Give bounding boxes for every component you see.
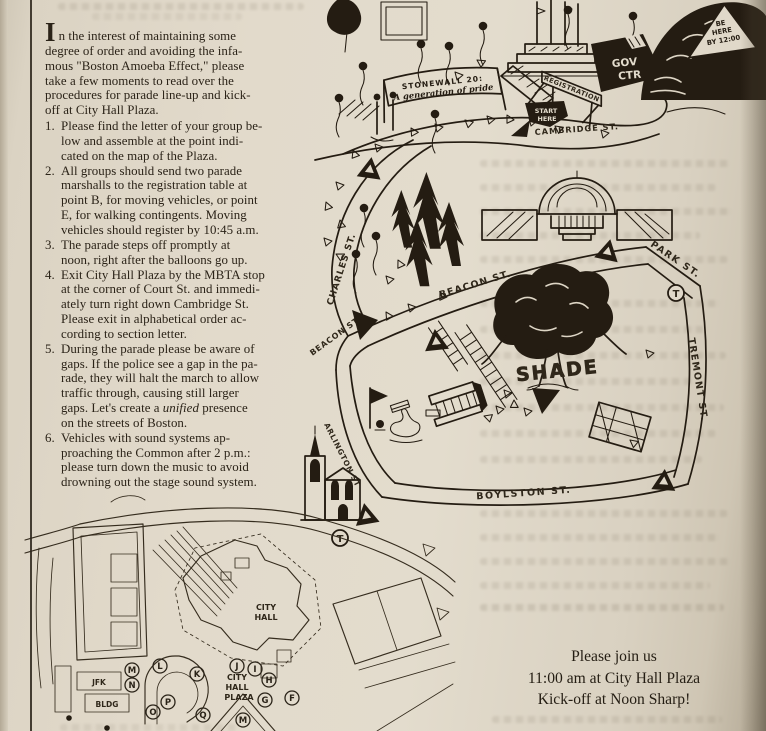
hatched-path (428, 321, 516, 407)
letter-marker: G (258, 693, 272, 707)
item-text: The parade steps off promptly at noon, r… (61, 238, 323, 268)
svg-text:P: P (165, 698, 171, 708)
intro-paragraph: In the interest of maintaining some degr… (45, 26, 323, 118)
public-garden-swan (370, 388, 440, 443)
letter-marker: H (262, 673, 276, 687)
svg-text:J: J (234, 662, 238, 672)
svg-text:CITY: CITY (227, 673, 247, 682)
invitation-line-3: Kick-off at Noon Sharp! (478, 689, 750, 711)
route-marker-triangles (350, 58, 609, 160)
svg-text:HERE: HERE (711, 26, 733, 37)
svg-text:G: G (262, 696, 269, 706)
letter-marker: N (125, 678, 139, 692)
item-text: During the parade please be aware of gap… (61, 342, 323, 431)
svg-text:F: F (289, 694, 295, 704)
plaza-label: CITY HALL PLAZA (224, 673, 254, 702)
svg-text:Q: Q (199, 711, 206, 721)
instruction-item-1: 1. Please find the letter of your group … (45, 119, 323, 164)
banner-title: STONEWALL 20: (401, 74, 483, 91)
corner-tree (327, 0, 361, 52)
beacon-st-label: BEACON ST. (438, 268, 513, 300)
item-text-italic: unified (163, 401, 199, 415)
registration-table: REGISTRATION (528, 71, 605, 130)
balloon-icon (352, 204, 381, 293)
stonewall-banner: STONEWALL 20: A generation of pride (379, 63, 505, 122)
svg-text:HALL: HALL (254, 613, 277, 622)
instruction-item-4: 4. Exit City Hall Plaza by the MBTA stop… (45, 268, 323, 342)
invitation-line-1: Please join us (478, 646, 750, 668)
instruction-item-2: 2. All groups should send two parade mar… (45, 164, 323, 238)
plaza-letter-markers: M N L K J I H G F P O Q M (125, 659, 299, 727)
balloon-icon (335, 6, 638, 153)
item-number: 4. (45, 268, 61, 342)
jfk-label-box: JFK BLDG (55, 666, 129, 731)
svg-text:O: O (149, 708, 156, 718)
page-spine-shadow (0, 0, 8, 731)
procedures-text-column: In the interest of maintaining some degr… (45, 26, 323, 490)
gov-ctr-building: GOV CTR (591, 34, 663, 92)
letter-marker: J (230, 659, 244, 673)
letter-marker: I (248, 662, 262, 676)
svg-text:HERE: HERE (537, 115, 556, 123)
state-house (482, 171, 672, 240)
right-blocks (333, 544, 455, 731)
letter-marker: Q (196, 708, 210, 722)
roads (315, 97, 725, 160)
scanned-newsletter-page: STONEWALL 20: A generation of pride REGI… (0, 0, 766, 731)
plaza-roads (25, 496, 455, 688)
drop-cap: I (45, 27, 56, 37)
item-text: All groups should send two parade marsha… (61, 164, 323, 238)
corner-sign-frame (381, 2, 427, 40)
svg-text:M: M (128, 666, 136, 676)
instruction-item-6: 6. Vehicles with sound systems ap- proac… (45, 431, 323, 490)
svg-text:K: K (194, 670, 201, 680)
svg-text:L: L (157, 662, 163, 672)
svg-text:BE: BE (715, 19, 726, 29)
page-frame-rule (30, 0, 32, 731)
svg-text:I: I (253, 665, 256, 675)
boston-common-map: T CHARLES ST. BEACON ST. BEACON ST. PARK… (290, 140, 766, 552)
registration-label: REGISTRATION (543, 74, 601, 104)
svg-text:START: START (535, 107, 558, 115)
city-hall-label: CITY (256, 603, 276, 612)
svg-text:N: N (128, 681, 135, 691)
intro-text: n the interest of maintaining some degre… (45, 29, 251, 117)
bandstand (427, 380, 489, 426)
svg-text:GOV: GOV (611, 56, 638, 70)
svg-text:BY 12:00: BY 12:00 (706, 33, 741, 47)
arlington-st-label: ARLINGTON ST (322, 421, 362, 488)
svg-text:CTR: CTR (618, 69, 642, 83)
letter-marker: K (190, 667, 204, 681)
charles-st-label: CHARLES ST. (326, 232, 359, 307)
svg-text:M: M (239, 716, 247, 726)
page-edge-shadow (740, 0, 766, 731)
item-number: 1. (45, 119, 61, 164)
instruction-item-3: 3. The parade steps off promptly at noon… (45, 238, 323, 268)
item-text: Please find the letter of your group be-… (61, 119, 323, 164)
instruction-item-5: 5. During the parade please be aware of … (45, 342, 323, 431)
svg-text:H: H (265, 676, 272, 686)
invitation-text: Please join us 11:00 am at City Hall Pla… (478, 646, 750, 711)
invitation-line-2: 11:00 am at City Hall Plaza (478, 668, 750, 690)
pine-trees (391, 172, 464, 286)
streets (332, 140, 706, 505)
item-number: 6. (45, 431, 61, 490)
jfk-building (73, 524, 237, 660)
letter-marker: P (161, 695, 175, 709)
street-lamps (339, 92, 396, 141)
boylston-st-label: BOYLSTON ST. (476, 485, 572, 503)
svg-text:HALL: HALL (225, 683, 248, 692)
route-arrow (352, 310, 378, 340)
cambridge-st-label: CAMBRIDGE ST. (534, 121, 619, 137)
item-text: Vehicles with sound systems ap- proachin… (61, 431, 323, 490)
letter-marker: M (125, 663, 139, 677)
item-number: 5. (45, 342, 61, 431)
svg-text:JFK: JFK (91, 678, 107, 687)
letter-marker: O (146, 705, 160, 719)
svg-text:PLAZA: PLAZA (224, 693, 254, 702)
banner-subtitle: A generation of pride (392, 82, 494, 103)
amphitheater (145, 656, 208, 724)
ramp (501, 66, 555, 108)
item-number: 2. (45, 164, 61, 238)
svg-text:BLDG: BLDG (96, 700, 119, 709)
start-here-sign: START HERE (511, 101, 568, 137)
item-text: Exit City Hall Plaza by the MBTA stop at… (61, 268, 323, 342)
letter-marker: L (153, 659, 167, 673)
staging-area-illustration: STONEWALL 20: A generation of pride REGI… (315, 0, 766, 170)
item-number: 3. (45, 238, 61, 268)
city-hall-building (175, 534, 321, 678)
city-hall-plaza-map: CITY HALL JFK BLDG CITY HALL PLAZA M (25, 488, 455, 731)
monument (501, 0, 613, 76)
letter-marker: F (285, 691, 299, 705)
